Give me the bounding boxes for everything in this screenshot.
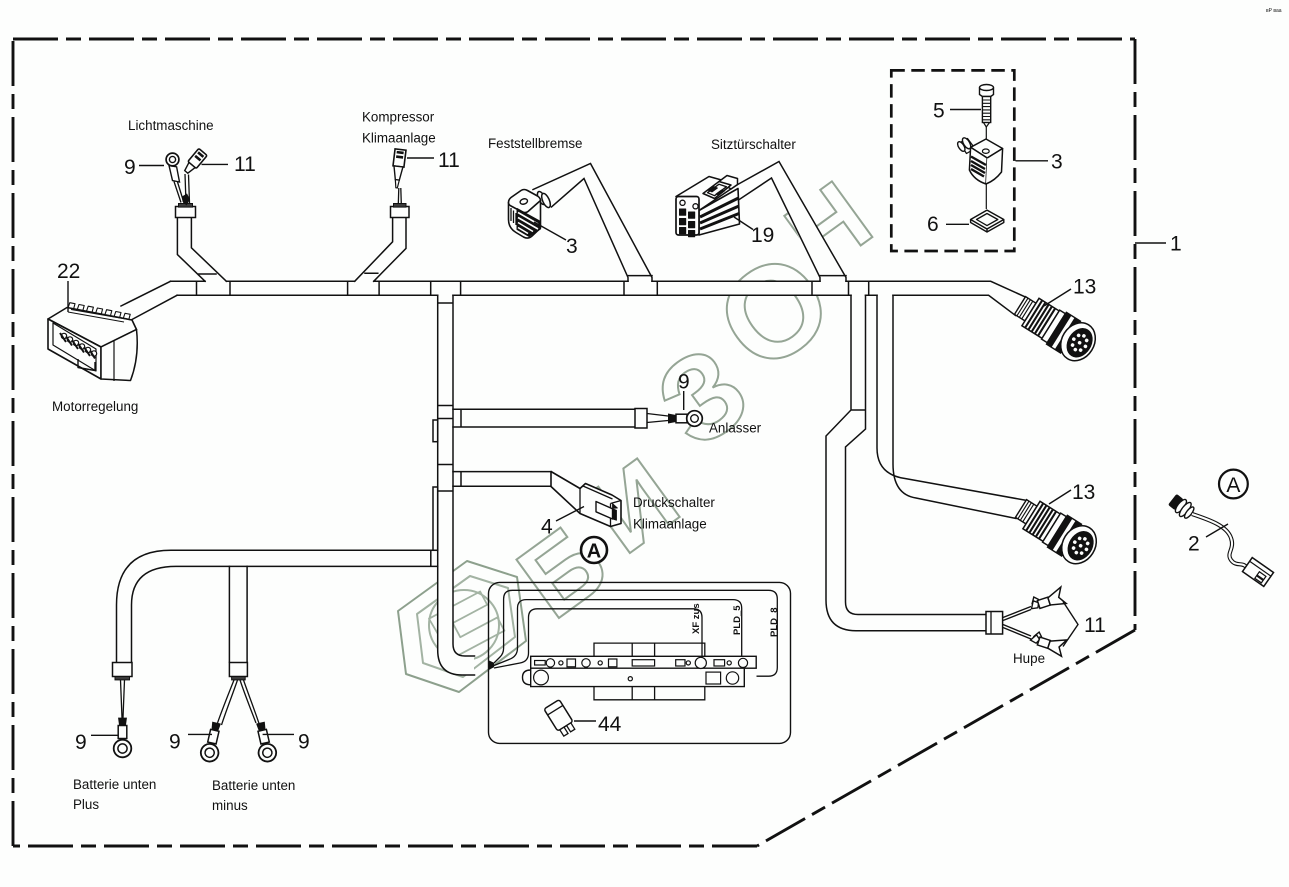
svg-text:Klimaanlage: Klimaanlage: [362, 131, 436, 146]
svg-text:Klimaanlage: Klimaanlage: [633, 517, 707, 532]
svg-text:Sitztürschalter: Sitztürschalter: [711, 137, 796, 152]
svg-text:3: 3: [566, 235, 578, 258]
svg-text:22: 22: [57, 260, 80, 283]
svg-text:Hupe: Hupe: [1013, 651, 1045, 666]
svg-text:44: 44: [598, 713, 622, 736]
svg-text:Lichtmaschine: Lichtmaschine: [128, 118, 214, 133]
svg-text:3: 3: [1051, 151, 1063, 174]
svg-text:Plus: Plus: [73, 797, 99, 812]
svg-text:11: 11: [234, 153, 256, 176]
svg-text:13: 13: [1073, 276, 1096, 299]
svg-text:Feststellbremse: Feststellbremse: [488, 136, 583, 151]
svg-text:Batterie unten: Batterie unten: [212, 778, 295, 793]
svg-text:5: 5: [933, 100, 945, 123]
svg-text:minus: minus: [212, 798, 248, 813]
svg-text:Kompressor: Kompressor: [362, 110, 435, 125]
svg-text:6: 6: [927, 213, 939, 236]
svg-text:A: A: [587, 541, 601, 563]
svg-text:4: 4: [541, 516, 553, 539]
svg-text:Motorregelung: Motorregelung: [52, 399, 138, 414]
svg-text:PLD_5: PLD_5: [732, 605, 743, 635]
svg-text:1: 1: [1170, 233, 1182, 256]
svg-text:Batterie unten: Batterie unten: [73, 777, 156, 792]
svg-text:вР ваа: вР ваа: [1266, 8, 1282, 14]
svg-text:19: 19: [751, 224, 774, 247]
svg-text:9: 9: [169, 731, 181, 754]
svg-text:11: 11: [1084, 614, 1106, 637]
svg-text:XF zus: XF zus: [691, 603, 702, 634]
svg-text:13: 13: [1072, 481, 1095, 504]
svg-text:9: 9: [75, 731, 87, 754]
svg-text:A: A: [1226, 474, 1240, 497]
svg-text:2: 2: [1188, 533, 1200, 556]
svg-text:9: 9: [298, 731, 310, 754]
svg-text:Anlasser: Anlasser: [709, 421, 762, 436]
svg-text:Druckschalter: Druckschalter: [633, 495, 715, 510]
svg-text:11: 11: [438, 149, 460, 172]
svg-text:9: 9: [678, 371, 690, 394]
svg-text:PLD_8: PLD_8: [769, 607, 780, 637]
svg-text:9: 9: [124, 156, 136, 179]
